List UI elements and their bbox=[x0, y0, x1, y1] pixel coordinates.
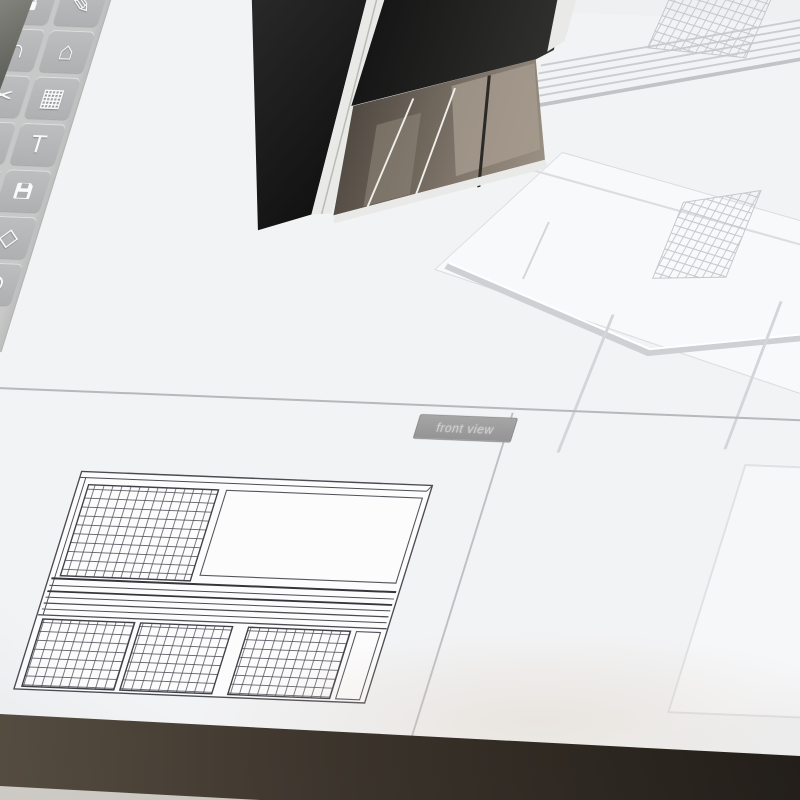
front-elevation-drawing bbox=[12, 470, 433, 705]
application-screen: ✎ ∩ ⌂ ✂ ▦ ✳ T ▤ bbox=[0, 0, 800, 800]
view-label-badge: front view bbox=[413, 414, 519, 443]
front-elevation-panel[interactable] bbox=[12, 470, 433, 705]
viewport-3d[interactable] bbox=[0, 0, 800, 432]
adjacent-sheet-outline[interactable] bbox=[667, 464, 800, 725]
photographed-cad-screen: ✎ ∩ ⌂ ✂ ▦ ✳ T ▤ bbox=[0, 0, 800, 800]
